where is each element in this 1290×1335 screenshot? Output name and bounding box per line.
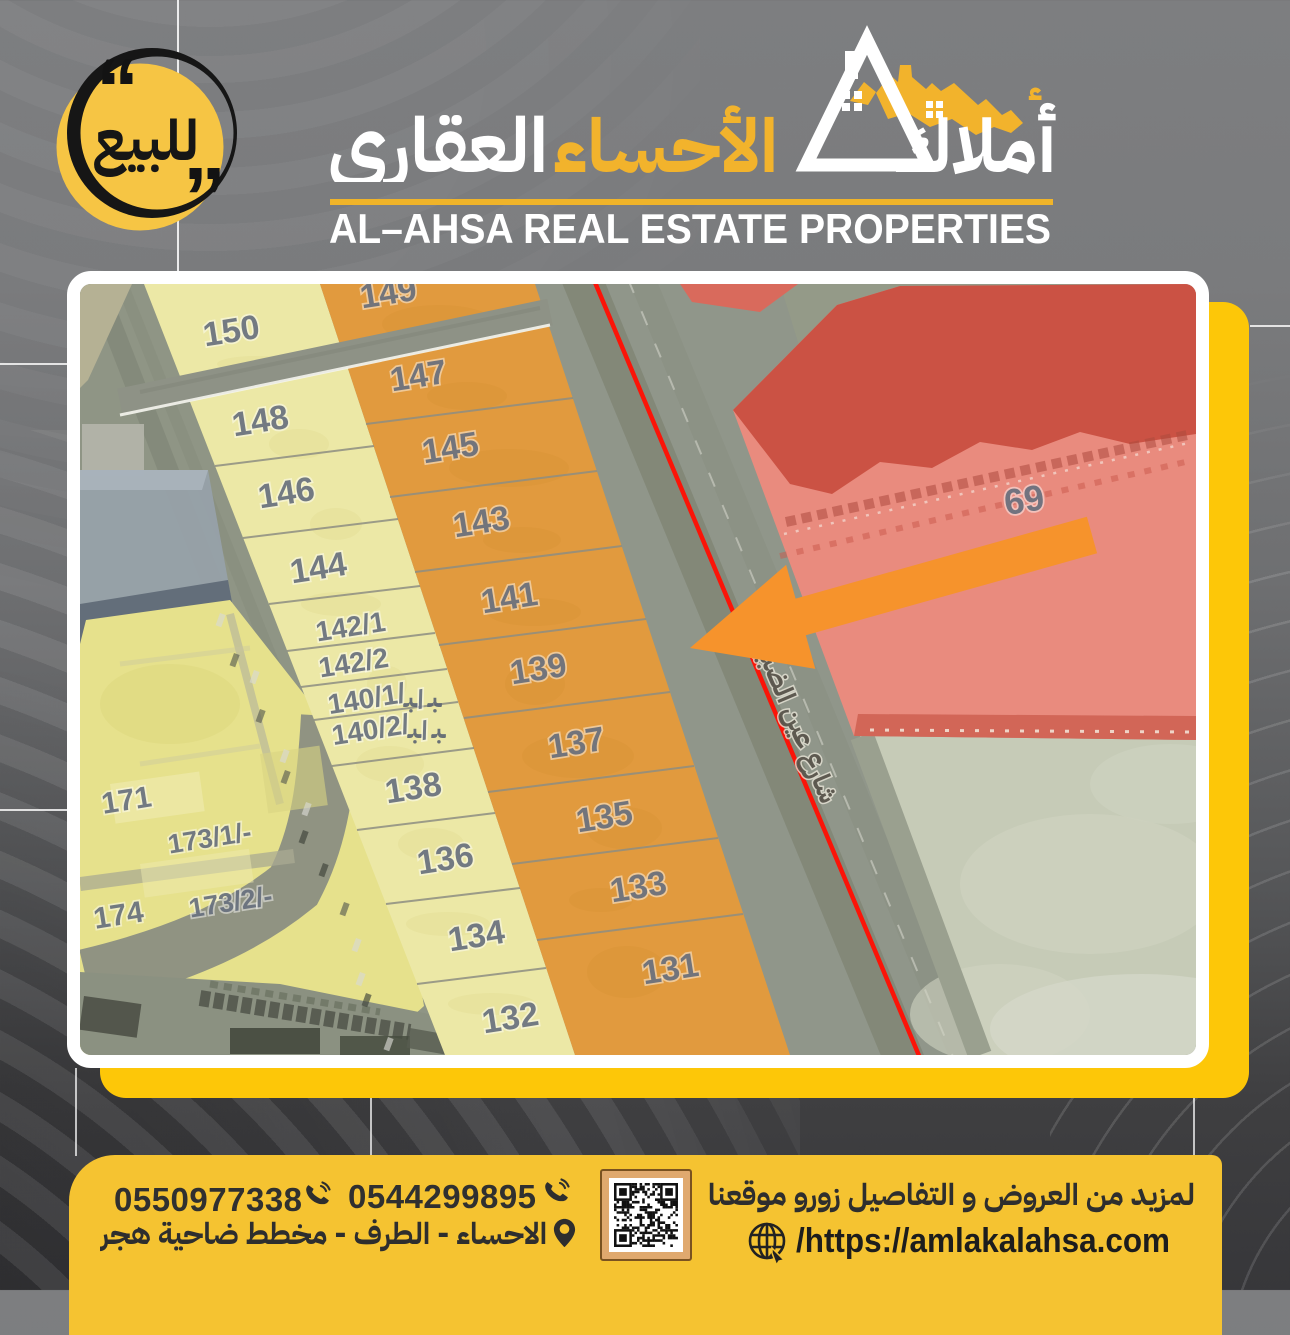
svg-text:AL–AHSA REAL ESTATE PROPERTIES: AL–AHSA REAL ESTATE PROPERTIES xyxy=(329,205,1051,251)
svg-text:69: 69 xyxy=(1001,476,1047,523)
svg-text:/https://amlakalahsa.com: /https://amlakalahsa.com xyxy=(796,1222,1170,1260)
svg-text:“: “ xyxy=(96,42,139,138)
